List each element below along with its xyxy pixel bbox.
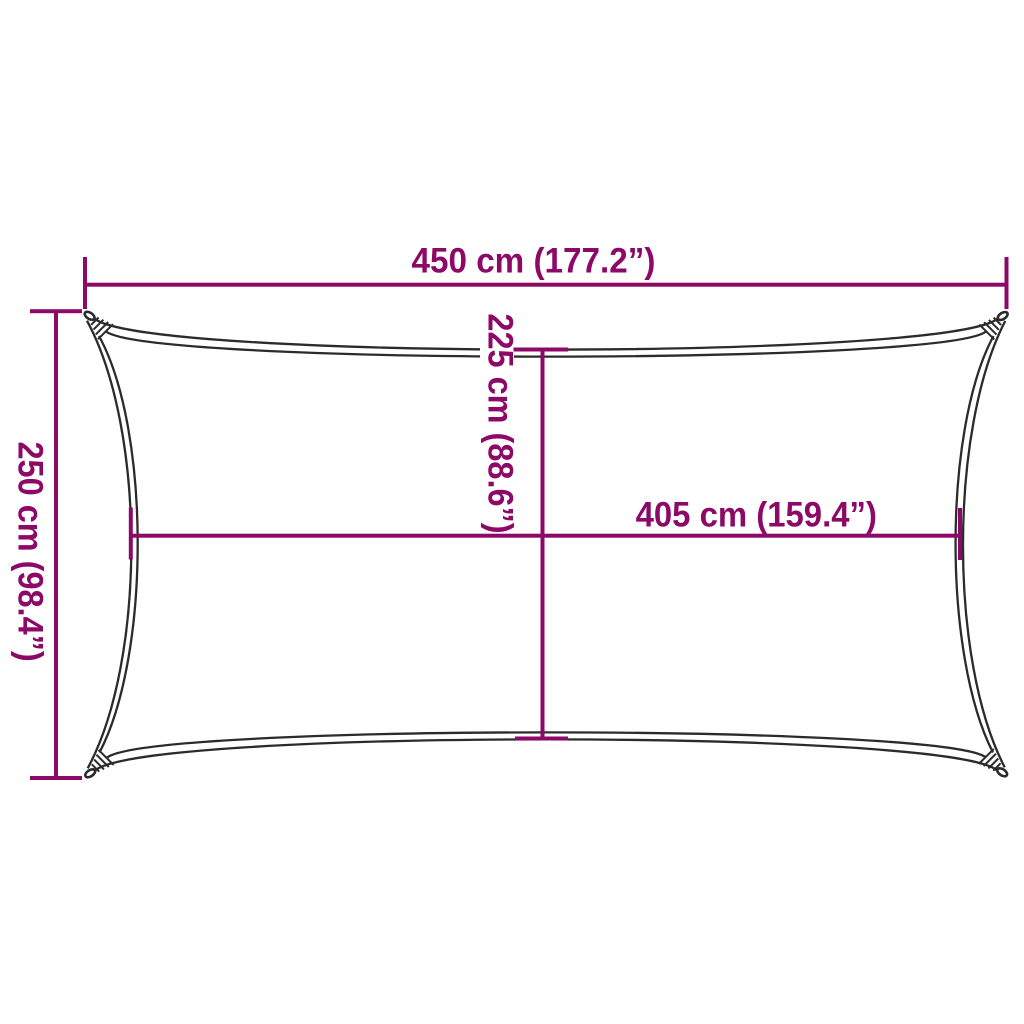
svg-text:405 cm (159.4”): 405 cm (159.4”) — [636, 496, 877, 535]
svg-text:450 cm (177.2”): 450 cm (177.2”) — [412, 242, 656, 281]
svg-text:225 cm (88.6”): 225 cm (88.6”) — [480, 313, 519, 533]
svg-text:250 cm (98.4”): 250 cm (98.4”) — [10, 442, 49, 662]
